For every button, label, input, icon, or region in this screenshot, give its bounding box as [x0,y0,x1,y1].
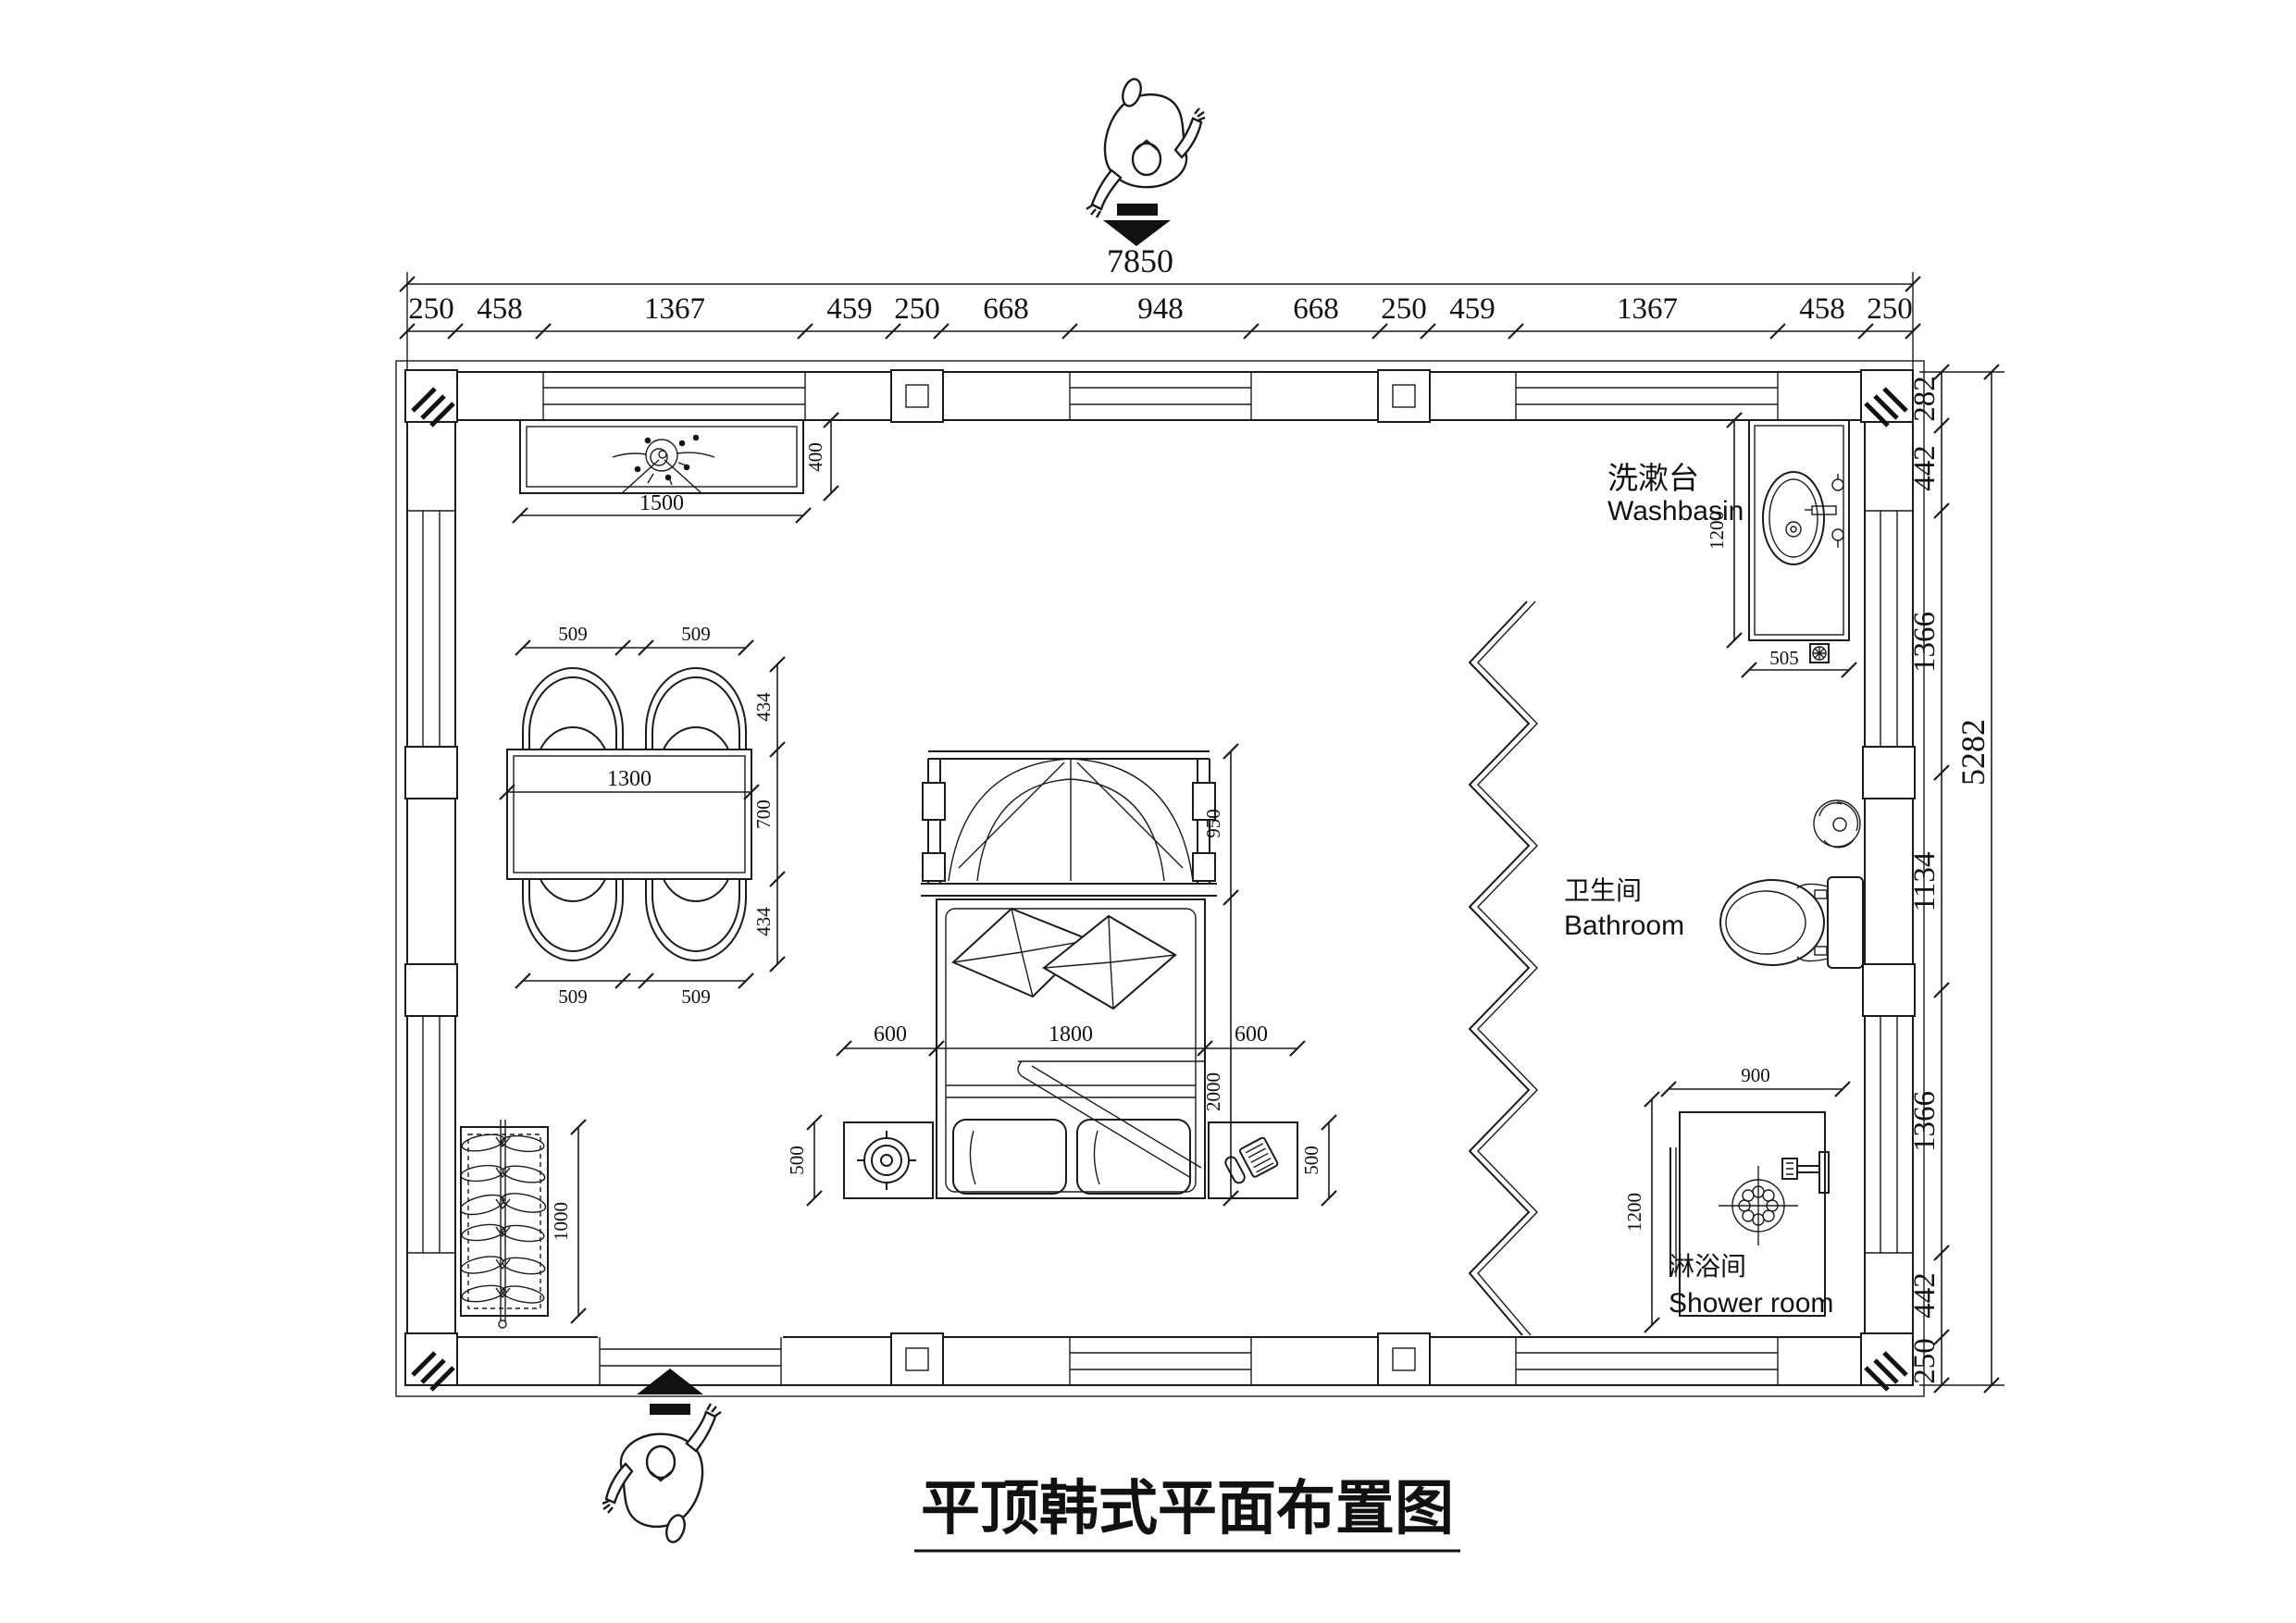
room-label-bathroom-en: Bathroom [1564,911,1684,941]
door-bottom-left [598,1336,783,1385]
floor-plan-canvas: 7850 250 458 1367 459 250 668 948 668 25… [0,0,2296,1623]
dim-table-depth: 700 [752,799,775,829]
entry-top [1086,77,1205,246]
dim-chair-width: 509 [681,623,711,645]
dim-label: 1366 [1908,612,1942,673]
nightstand-left [844,1122,933,1198]
window-left-upper [407,511,455,747]
dim-bed-width: 1800 [1049,1022,1093,1047]
dim-table-width: 1300 [607,767,652,791]
dining-chair [646,668,746,751]
room-label-shower-en: Shower room [1669,1288,1833,1319]
dim-washbasin-drain: 505 [1769,647,1799,669]
dining-chair [523,877,623,960]
dim-label: 442 [1908,445,1942,491]
dim-chair-depth: 434 [752,907,775,936]
bed-group: 950 2000 600 1800 600 500 500 [786,744,1336,1206]
person-top-icon [1086,77,1205,217]
dim-label: 1367 [1617,292,1678,326]
dim-label: 458 [477,292,523,326]
room-label-washbasin-en: Washbasin [1607,496,1744,527]
dimension-chain-right: 282 442 1366 1134 1366 442 250 5282 [1908,365,2004,1393]
bed-canopy [921,751,1217,896]
window-bottom-right [1516,1337,1778,1385]
washbasin-area: 1200 505 洗漱台 Washbasin [1607,413,1856,677]
window-right-upper [1865,511,1913,747]
drawing-title: 平顶韩式平面布置图 [914,1475,1460,1551]
dim-nightstand-width: 600 [874,1022,907,1047]
window-top-center [1070,372,1251,420]
dining-chair [646,877,746,960]
window-top-right [1516,372,1778,420]
dim-chair-depth: 434 [752,692,775,722]
table-lamp-icon [857,1131,916,1190]
dim-label: 282 [1908,376,1942,422]
dim-label: 948 [1137,292,1184,326]
dim-label: 1366 [1908,1091,1942,1152]
window-left-lower [407,1016,455,1253]
dim-label: 668 [1293,292,1339,326]
dim-total-width: 7850 [1107,242,1173,279]
dim-label: 250 [1381,292,1427,326]
room-label-bathroom-zh: 卫生间 [1564,876,1642,905]
dim-bench-depth: 950 [1202,809,1224,838]
dim-label: 668 [983,292,1029,326]
clothes-rack: 1000 [459,1120,586,1328]
room-label-shower-zh: 淋浴间 [1669,1252,1746,1281]
dim-label: 1367 [644,292,705,326]
room-label-washbasin-zh: 洗漱台 [1607,461,1699,495]
hanging-clothes-icon [459,1132,548,1306]
page-title: 平顶韩式平面布置图 [921,1475,1454,1542]
dim-label: 459 [826,292,873,326]
exhaust-fan-icon [1814,800,1860,848]
shower-drain-icon [1719,1166,1798,1245]
folding-door [1470,601,1537,1335]
dim-console-width: 1500 [639,491,684,515]
dining-set: 1300 509 509 509 509 434 700 434 [500,623,785,1008]
plant-decor-icon [613,435,714,493]
nightstand-right [1209,1122,1297,1198]
entry-arrow-bar [1117,204,1158,216]
dim-nightstand-depth: 500 [786,1146,808,1175]
dim-total-height: 5282 [1955,719,1992,786]
shower-area: 900 1200 淋浴间 Shower room [1623,1064,1850,1332]
dimension-chain-top: 7850 250 458 1367 459 250 668 948 668 25… [400,242,1920,370]
dim-label: 250 [408,292,454,326]
dim-bed-length: 2000 [1202,1072,1224,1111]
window-bottom-center [1070,1337,1251,1385]
dim-shower-depth: 1200 [1623,1193,1645,1232]
dim-label: 458 [1799,292,1845,326]
floor-drain-icon [1810,644,1829,663]
console-cabinet: 1500 400 [513,413,838,523]
window-right-lower [1865,1016,1913,1253]
shower-head-icon [1782,1152,1829,1193]
dim-wardrobe-length: 1000 [550,1202,572,1241]
entry-arrow-bar [650,1404,690,1415]
dim-label: 459 [1449,292,1496,326]
dim-chair-width: 509 [558,985,588,1008]
dim-label: 442 [1908,1272,1942,1319]
dim-shower-width: 900 [1741,1064,1770,1086]
dim-label: 1134 [1908,852,1942,912]
bathroom-area: 卫生间 Bathroom [1564,800,1863,968]
dim-label: 250 [1908,1338,1942,1384]
dim-label: 250 [894,292,940,326]
toilet-icon [1720,877,1863,968]
dim-label: 250 [1867,292,1913,326]
sink-icon [1763,472,1824,564]
dining-chair [523,668,623,751]
window-top-left [543,372,805,420]
dim-nightstand-depth: 500 [1300,1146,1322,1175]
entry-bottom [602,1369,721,1544]
dim-chair-width: 509 [681,985,711,1008]
dim-console-depth: 400 [804,442,826,472]
person-bottom-icon [602,1404,721,1544]
dim-chair-width: 509 [558,623,588,645]
dim-nightstand-width: 600 [1235,1022,1268,1047]
